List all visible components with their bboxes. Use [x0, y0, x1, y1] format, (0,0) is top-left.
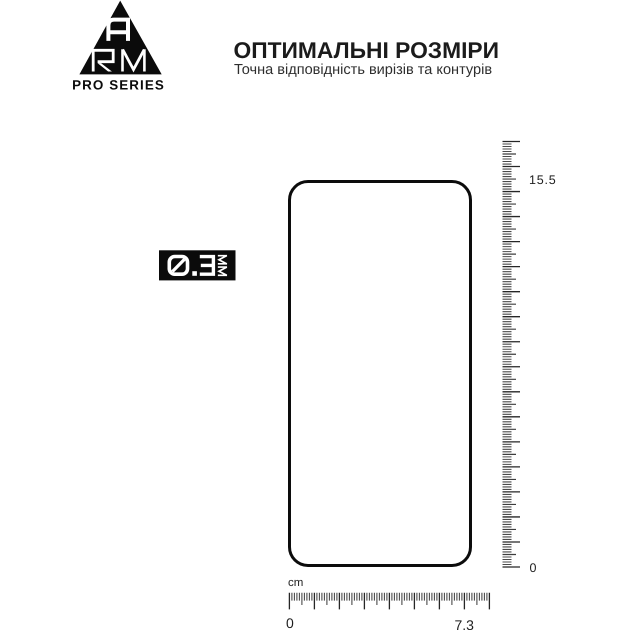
svg-text:PRO SERIES: PRO SERIES	[72, 78, 165, 93]
